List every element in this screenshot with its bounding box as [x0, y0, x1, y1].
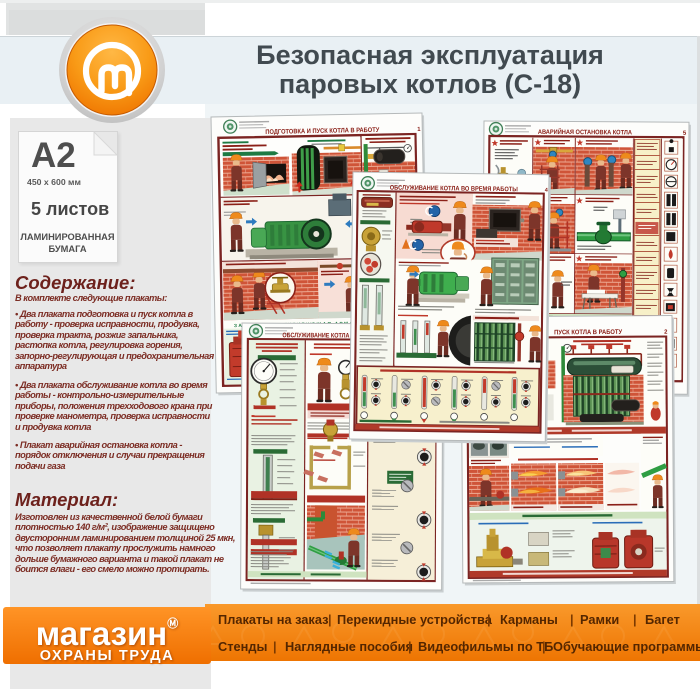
svg-text:ПУСК КОТЛА В РАБОТУ: ПУСК КОТЛА В РАБОТУ [554, 329, 623, 336]
